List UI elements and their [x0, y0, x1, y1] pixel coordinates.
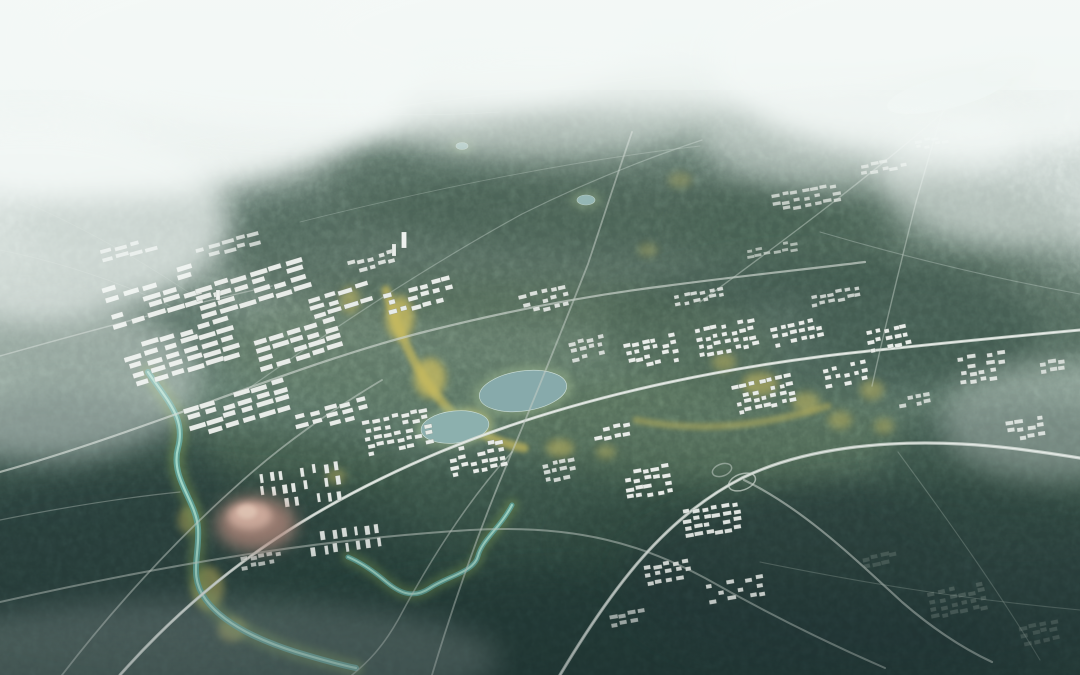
landmark-tower	[402, 232, 407, 248]
masterplan-scene	[0, 0, 1080, 675]
bottom-vignette-overlay	[0, 490, 1080, 675]
top-haze-overlay	[0, 0, 1080, 160]
aerial-city-masterplan-render	[0, 0, 1080, 675]
landmark-tower	[216, 290, 220, 300]
landmark-tower	[392, 244, 396, 256]
